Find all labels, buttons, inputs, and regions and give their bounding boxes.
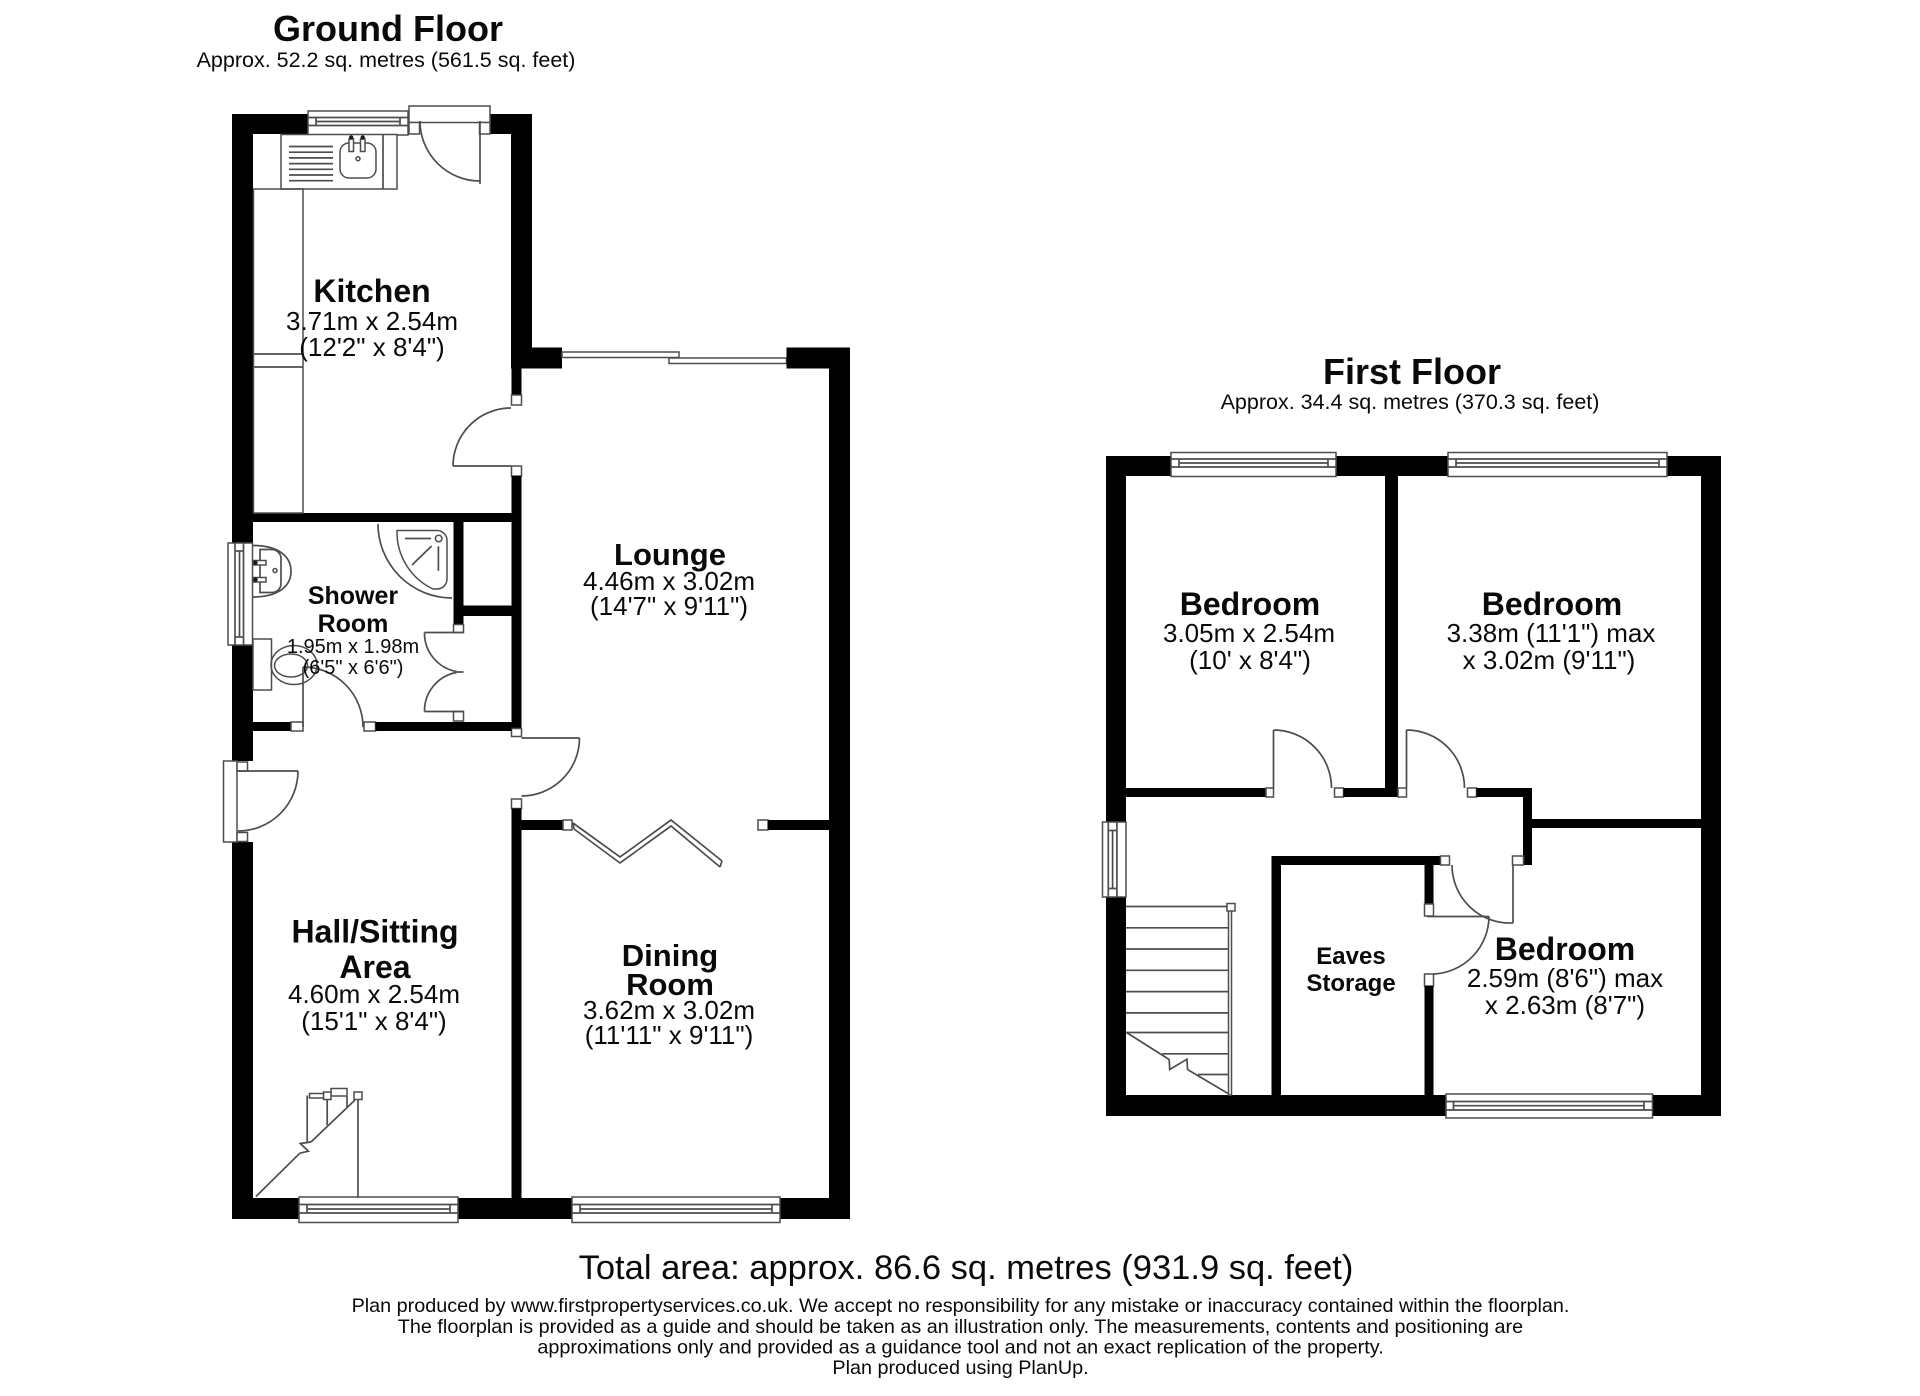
svg-text:(6'5" x 6'6"): (6'5" x 6'6")	[303, 657, 404, 679]
svg-text:Bedroom: Bedroom	[1180, 586, 1320, 622]
svg-text:(15'1" x 8'4"): (15'1" x 8'4")	[301, 1006, 446, 1036]
svg-text:The floorplan is provided as a: The floorplan is provided as a guide and…	[398, 1316, 1523, 1338]
svg-text:Storage: Storage	[1306, 970, 1395, 997]
svg-text:(11'11" x 9'11"): (11'11" x 9'11")	[585, 1020, 754, 1050]
svg-text:x 3.02m (9'11"): x 3.02m (9'11")	[1463, 645, 1636, 675]
svg-text:Approx. 34.4 sq. metres (370.3: Approx. 34.4 sq. metres (370.3 sq. feet)	[1221, 390, 1600, 414]
svg-text:Hall/Sitting: Hall/Sitting	[291, 914, 458, 950]
svg-text:Kitchen: Kitchen	[313, 273, 430, 309]
svg-text:(14'7" x 9'11"): (14'7" x 9'11")	[590, 591, 748, 621]
svg-text:(12'2" x 8'4"): (12'2" x 8'4")	[299, 332, 444, 362]
svg-text:Plan produced by www.firstprop: Plan produced by www.firstpropertyservic…	[352, 1295, 1570, 1317]
svg-text:4.60m x 2.54m: 4.60m x 2.54m	[288, 979, 460, 1009]
svg-text:Total area: approx. 86.6 sq. m: Total area: approx. 86.6 sq. metres (931…	[579, 1249, 1354, 1287]
svg-text:2.59m (8'6") max: 2.59m (8'6") max	[1467, 963, 1663, 993]
svg-text:1.95m x 1.98m: 1.95m x 1.98m	[287, 636, 419, 658]
svg-text:Bedroom: Bedroom	[1482, 586, 1622, 622]
svg-text:Shower: Shower	[308, 582, 399, 610]
svg-text:Eaves: Eaves	[1316, 943, 1385, 970]
svg-text:3.38m (11'1") max: 3.38m (11'1") max	[1447, 618, 1656, 648]
svg-text:(10' x 8'4"): (10' x 8'4")	[1189, 645, 1311, 675]
svg-text:3.05m x 2.54m: 3.05m x 2.54m	[1163, 618, 1335, 648]
svg-text:x 2.63m (8'7"): x 2.63m (8'7")	[1485, 990, 1645, 1020]
svg-text:Bedroom: Bedroom	[1495, 931, 1635, 967]
svg-text:Approx. 52.2 sq. metres (561.5: Approx. 52.2 sq. metres (561.5 sq. feet)	[197, 48, 576, 72]
svg-text:Room: Room	[318, 610, 389, 638]
svg-text:First Floor: First Floor	[1323, 351, 1501, 392]
svg-text:Ground Floor: Ground Floor	[273, 8, 503, 49]
svg-text:Plan produced using PlanUp.: Plan produced using PlanUp.	[832, 1357, 1088, 1379]
svg-text:approximations only and provid: approximations only and provided as a gu…	[537, 1337, 1383, 1359]
